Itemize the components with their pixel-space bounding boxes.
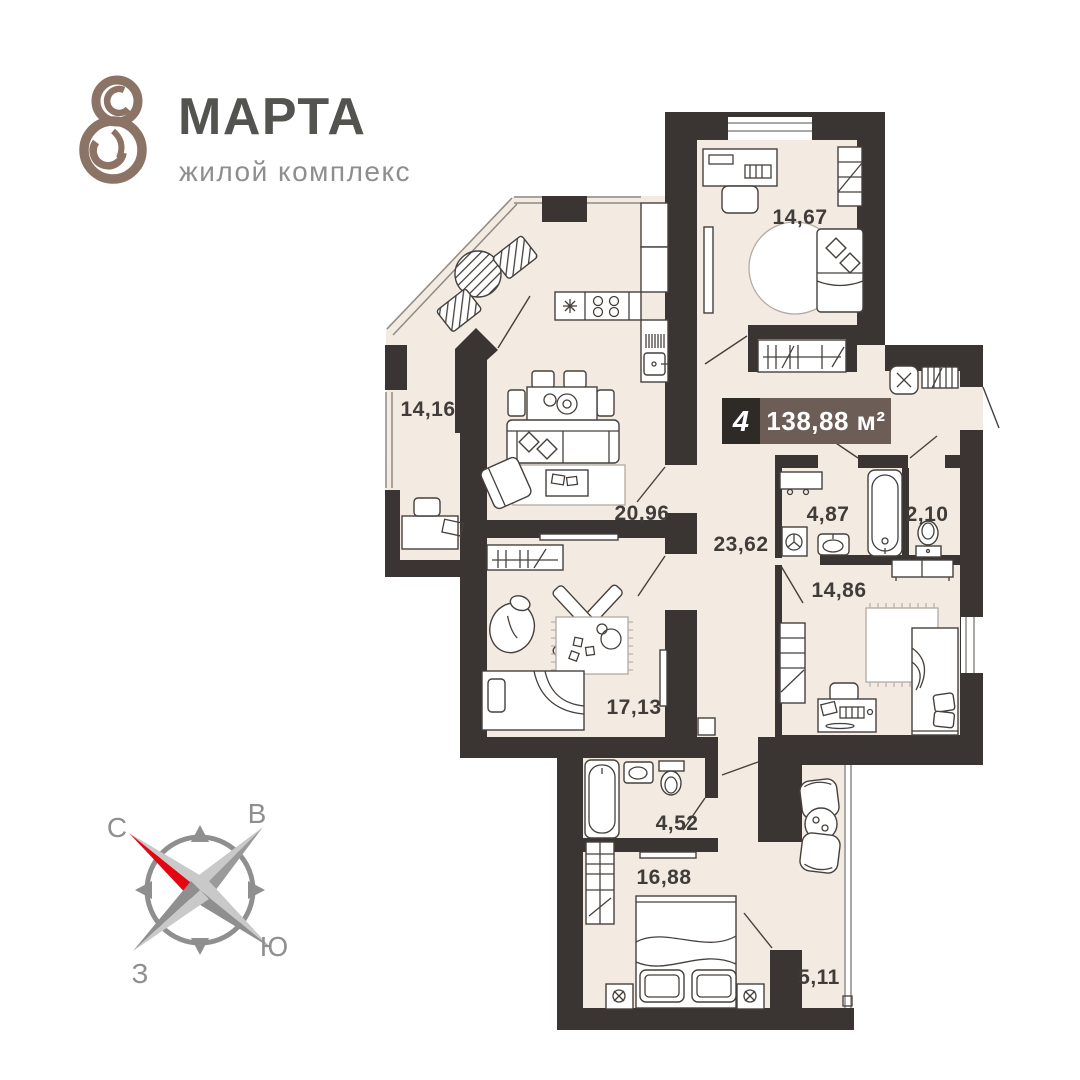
bathroom-sink — [818, 534, 849, 555]
badge-rooms-count: 4 — [732, 406, 749, 438]
window-bedroom-top — [728, 117, 812, 140]
compass-west-label: З — [132, 958, 149, 989]
badge-total-area: 138,88 м² — [766, 406, 885, 436]
hall-cabinet — [698, 718, 715, 735]
sofa — [507, 420, 619, 463]
fridge-icon — [563, 299, 577, 313]
clothes-rack — [780, 623, 805, 703]
area-badge: 4 138,88 м² — [722, 398, 891, 444]
room-label-bathroom-small: 4,52 — [656, 812, 699, 835]
compass-east-label: В — [248, 798, 267, 829]
bed-bedroom-right — [912, 628, 958, 735]
washing-machine — [782, 527, 807, 556]
compass-south-label: Ю — [260, 931, 288, 962]
nightstand-left — [606, 984, 633, 1009]
compass-north-label: С — [107, 812, 127, 843]
kids-rug — [551, 617, 633, 674]
room-label-loggia-left: 14,16 — [400, 398, 455, 421]
room-label-bedroom-right: 14,86 — [811, 579, 866, 602]
window-loggia-right — [843, 765, 852, 1008]
nightstand-right — [737, 984, 764, 1009]
kitchen-sink — [644, 353, 668, 375]
floorplan-canvas: МАРТА жилой комплекс — [0, 0, 1080, 1080]
electric-panel-icon — [890, 366, 918, 394]
coffee-table — [546, 470, 588, 496]
room-label-kids-room: 17,13 — [606, 696, 661, 719]
dishwasher — [646, 334, 664, 348]
room-label-kitchen-living: 20,96 — [614, 502, 669, 525]
room-label-wc: 2,10 — [906, 503, 949, 526]
compass: С В Ю З — [107, 798, 288, 989]
room-label-hallway: 23,62 — [713, 533, 768, 556]
room-label-bedroom-bottom: 16,88 — [636, 866, 691, 889]
room-label-bathroom: 4,87 — [807, 503, 850, 526]
wardrobe-bedroom-top — [758, 340, 846, 372]
window-bedroom-right — [961, 617, 983, 673]
wardrobe-bedroom-bottom — [586, 842, 614, 924]
kids-bed — [482, 671, 584, 730]
logo-title: МАРТА — [178, 88, 366, 146]
double-bed — [636, 896, 736, 1008]
logo-subtitle: жилой комплекс — [179, 156, 411, 187]
furniture-loggia-right — [799, 778, 841, 874]
logo-mark-8 — [84, 80, 142, 179]
bathtub — [868, 470, 902, 556]
room-label-bedroom-top: 14,67 — [772, 206, 827, 229]
logo: МАРТА жилой комплекс — [84, 80, 411, 187]
room-label-loggia-right: 5,11 — [798, 966, 840, 989]
floorplan-page: МАРТА жилой комплекс — [0, 0, 1080, 1080]
coat-rack — [922, 367, 958, 388]
tv — [540, 534, 618, 540]
kids-shelf — [487, 545, 563, 570]
